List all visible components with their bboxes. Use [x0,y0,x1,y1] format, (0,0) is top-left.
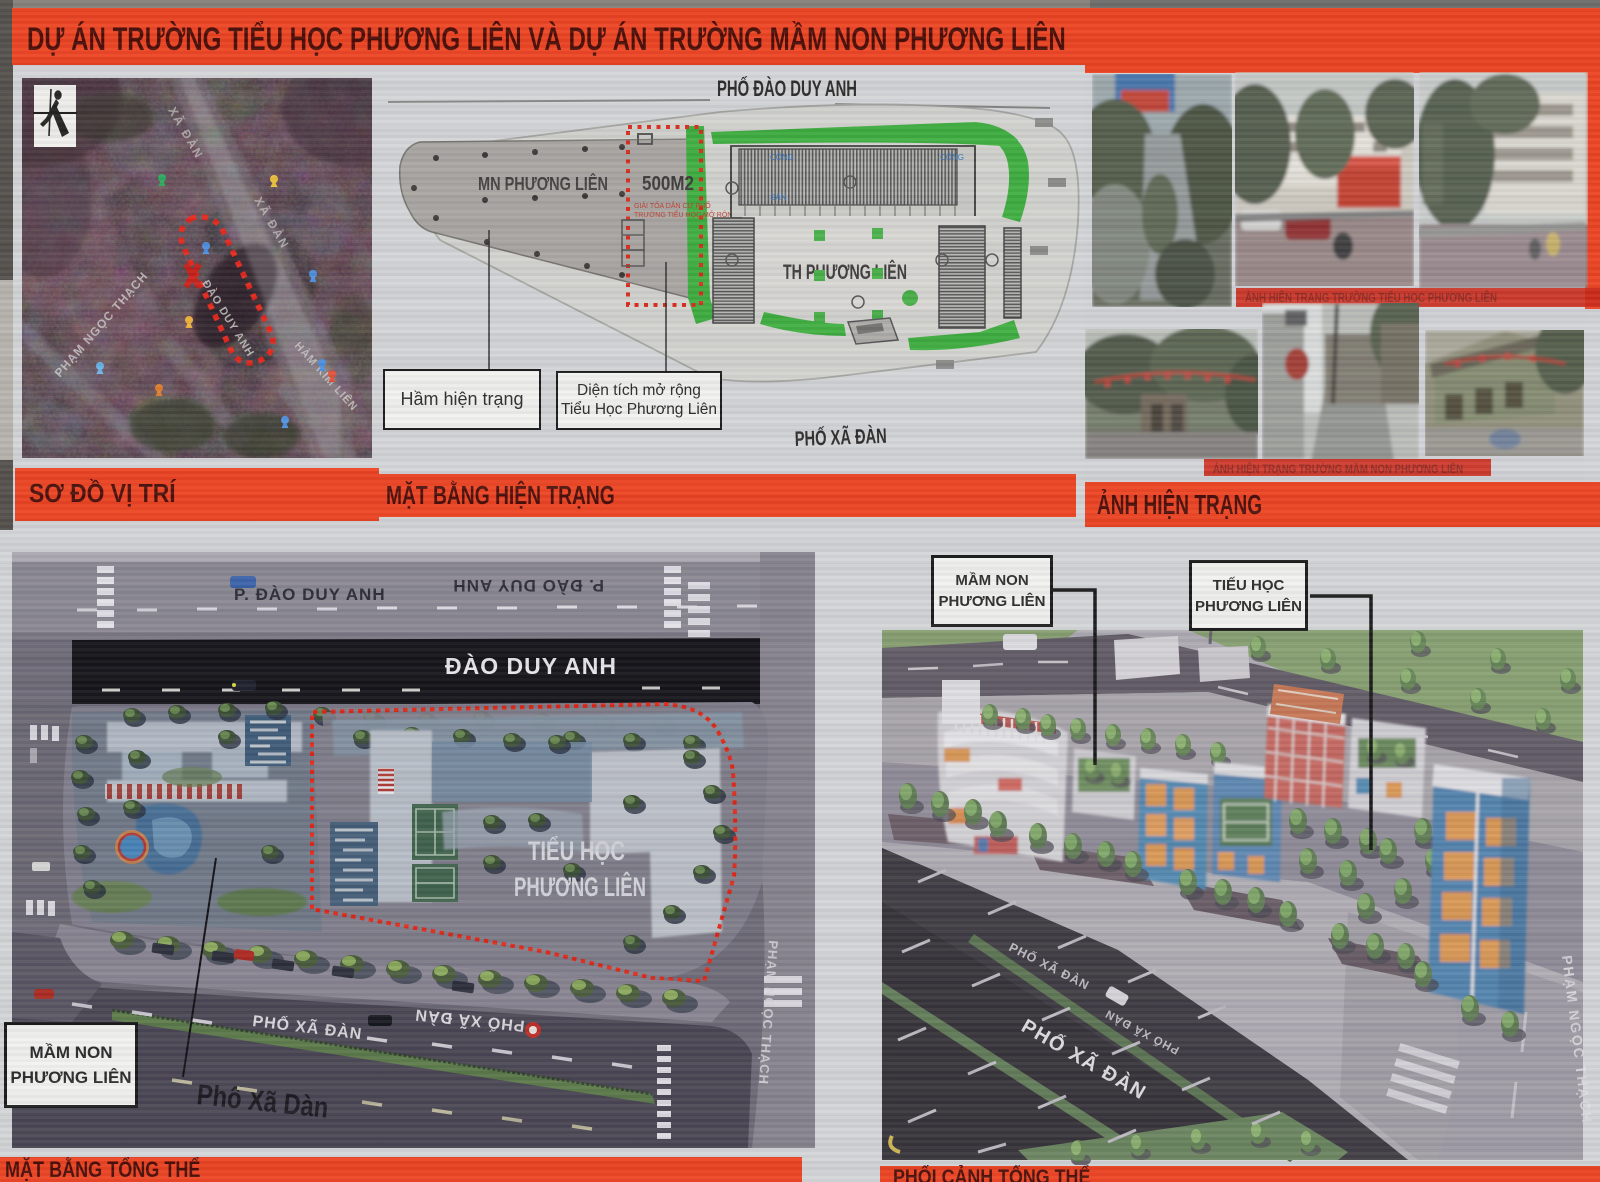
svg-text:P. ĐÀO DUY ANH: P. ĐÀO DUY ANH [452,576,604,595]
svg-text:SÂN: SÂN [770,193,787,202]
svg-text:MN PHƯƠNG LIÊN: MN PHƯƠNG LIÊN [478,173,608,194]
svg-text:TH PHƯƠNG LIÊN: TH PHƯƠNG LIÊN [783,260,907,284]
svg-text:ĐÀO DUY ANH: ĐÀO DUY ANH [445,652,617,679]
svg-text:PHỐ ĐÀO DUY ANH: PHỐ ĐÀO DUY ANH [717,75,857,101]
svg-text:CỔNG: CỔNG [770,153,794,162]
svg-text:500M2: 500M2 [642,173,694,195]
svg-text:CỔNG: CỔNG [940,153,964,162]
svg-text:PHỐ XÃ ĐÀN: PHỐ XÃ ĐÀN [794,424,887,451]
svg-text:P. ĐÀO DUY ANH: P. ĐÀO DUY ANH [234,585,386,604]
